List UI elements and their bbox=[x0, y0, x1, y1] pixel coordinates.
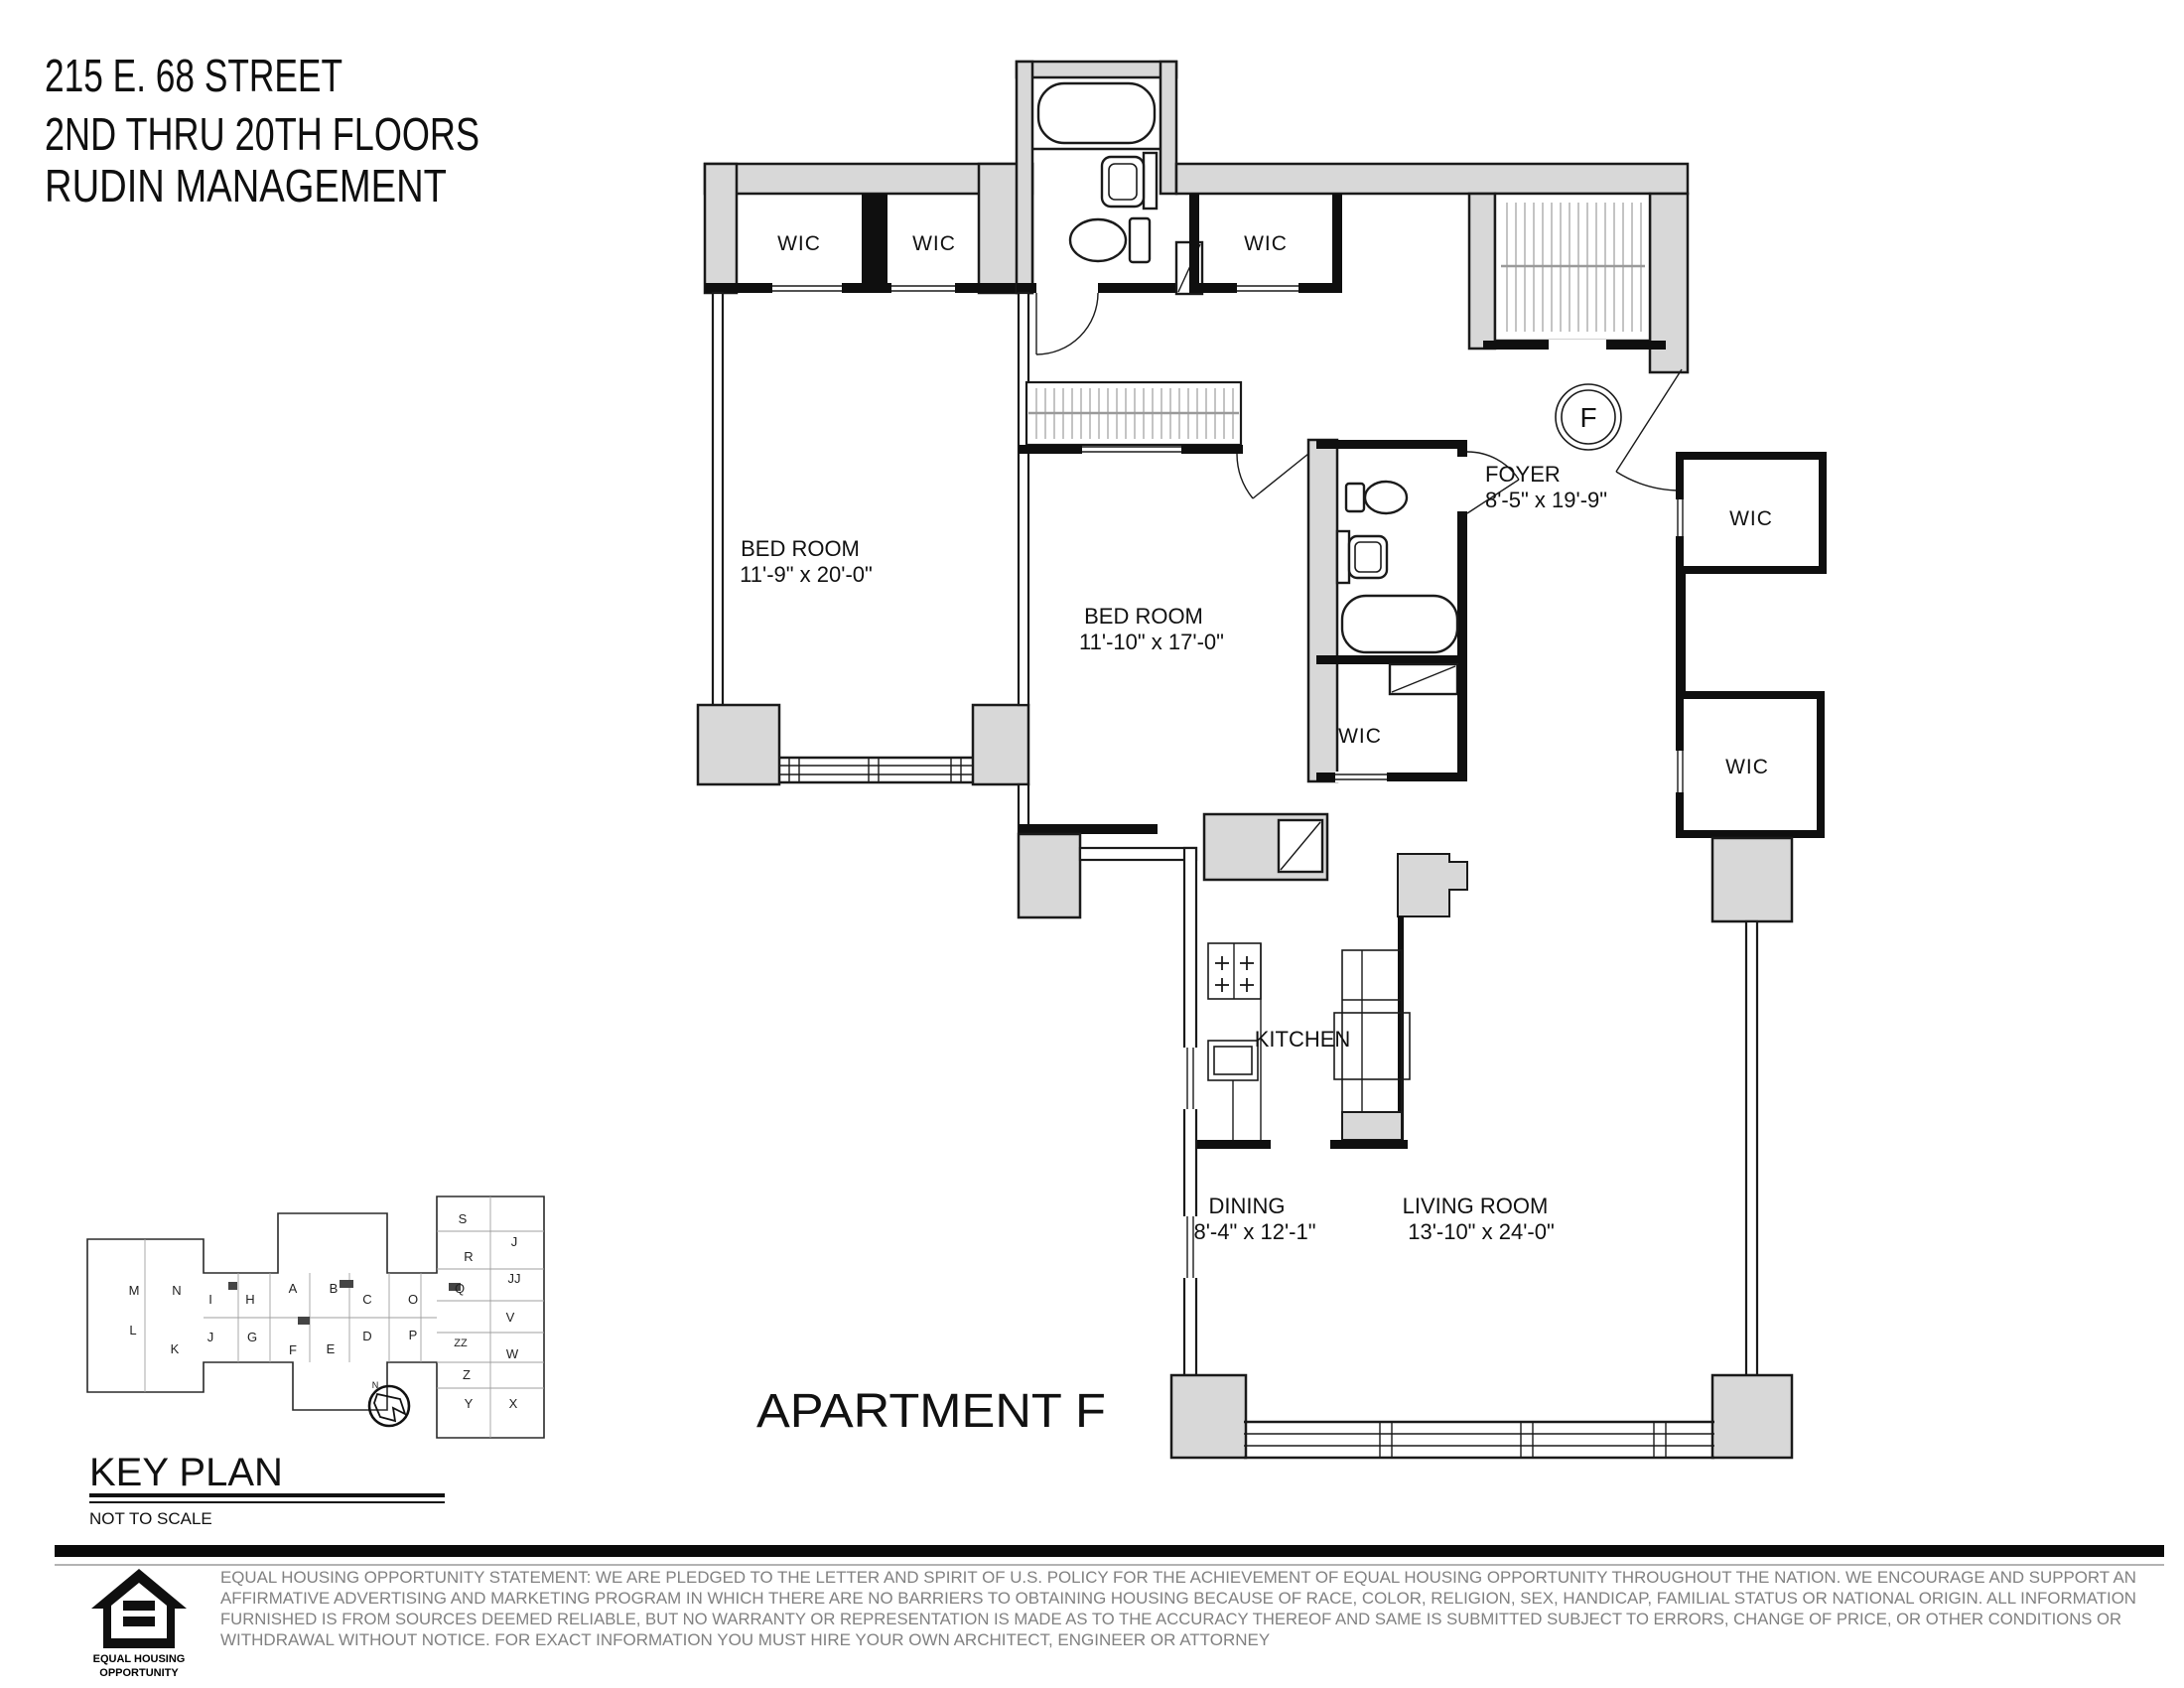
disclaimer-text: EQUAL HOUSING OPPORTUNITY STATEMENT: WE … bbox=[220, 1568, 2136, 1649]
keyplan-unit-A: A bbox=[289, 1281, 298, 1296]
wic4-wall-right bbox=[1457, 664, 1467, 781]
wicr1-wall-top bbox=[1676, 452, 1827, 460]
keyplan-unit-G: G bbox=[247, 1330, 257, 1344]
floorplan-canvas: 215 E. 68 STREET 2ND THRU 20TH FLOORS RU… bbox=[0, 0, 2184, 1688]
keyplan-unit-D: D bbox=[362, 1329, 371, 1343]
kitchen: KITCHEN bbox=[1196, 814, 1467, 1149]
wic-right2-label: WIC bbox=[1725, 756, 1769, 778]
disclaimer-line-2: AFFIRMATIVE ADVERTISING AND MARKETING PR… bbox=[220, 1589, 2136, 1608]
bath2-gray-left bbox=[1308, 440, 1337, 781]
floorplan-page: 215 E. 68 STREET 2ND THRU 20TH FLOORS RU… bbox=[0, 0, 2184, 1688]
eho-text-line1: EQUAL HOUSING bbox=[93, 1653, 186, 1665]
toilet2-bowl-icon bbox=[1365, 482, 1407, 513]
bath2-wall-bottom bbox=[1316, 655, 1467, 664]
kitchen-gray-step bbox=[1398, 854, 1467, 916]
disclaimer-line-4: WITHDRAWAL WITHOUT NOTICE. FOR EXACT INF… bbox=[220, 1630, 1270, 1649]
keyplan-unit-X: X bbox=[509, 1396, 518, 1411]
exterior-step-wall bbox=[1080, 848, 1196, 860]
floors-line: 2ND THRU 20TH FLOORS bbox=[45, 108, 479, 160]
living-name: LIVING ROOM bbox=[1403, 1194, 1549, 1218]
dining-name: DINING bbox=[1209, 1194, 1286, 1218]
wic-bath2-label: WIC bbox=[1338, 725, 1382, 748]
closet-gray-left bbox=[1469, 194, 1495, 349]
column-se bbox=[1712, 1375, 1792, 1458]
keyplan-core-3 bbox=[298, 1317, 310, 1325]
keyplan-unit-Y: Y bbox=[465, 1396, 474, 1411]
keyplan-unit-C: C bbox=[362, 1292, 371, 1307]
south-window-band bbox=[1244, 1422, 1714, 1458]
bed2-wall-top-a bbox=[1019, 445, 1082, 454]
bathtub2-icon bbox=[1342, 596, 1457, 652]
column-below-wicr2 bbox=[1712, 838, 1792, 921]
bedroom2-dims: 11'-10" x 17'-0" bbox=[1079, 630, 1224, 654]
keyplan-unit-Q: Q bbox=[455, 1281, 465, 1296]
keyplan-unit-M: M bbox=[129, 1283, 140, 1298]
bed1-column-left bbox=[698, 705, 779, 784]
wic-row-north: WIC WIC bbox=[705, 164, 1032, 294]
keyplan-unit-E: E bbox=[327, 1341, 336, 1356]
unit-marker-letter: F bbox=[1579, 402, 1596, 433]
keyplan-unit-J-top: J bbox=[511, 1234, 518, 1249]
keyplan-title: KEY PLAN bbox=[89, 1451, 283, 1494]
toilet-tank-icon bbox=[1130, 218, 1150, 262]
west-window-1 bbox=[1182, 1048, 1198, 1109]
bedroom-1: BED ROOM 11'-9" x 20'-0" bbox=[698, 293, 1028, 784]
sink2-backsplash-icon bbox=[1337, 531, 1349, 583]
wicr2-wall-right bbox=[1817, 691, 1825, 838]
wall-top-band-right bbox=[1176, 164, 1688, 194]
keyplan-unit-ZZ: ZZ bbox=[454, 1337, 468, 1349]
bedroom1-dims: 11'-9" x 20'-0" bbox=[740, 562, 873, 587]
footer: EQUAL HOUSING OPPORTUNITY EQUAL HOUSING … bbox=[55, 1545, 2164, 1679]
bath1-wall-left bbox=[1017, 62, 1032, 293]
keyplan-unit-JJ: JJ bbox=[508, 1271, 521, 1286]
sink-backsplash-icon bbox=[1144, 153, 1157, 209]
wic-b-door-opening bbox=[891, 282, 955, 294]
keyplan-core-1 bbox=[228, 1282, 237, 1290]
keyplan-unit-V: V bbox=[506, 1310, 515, 1325]
foyer-dims: 8'-5" x 19'-9" bbox=[1485, 488, 1607, 512]
right-wics: WIC WIC bbox=[1676, 452, 1827, 1375]
bed1-window bbox=[779, 758, 973, 782]
entry-door-leaf bbox=[1616, 369, 1682, 472]
bath2-wall-top bbox=[1316, 440, 1467, 449]
bathroom-1 bbox=[1017, 62, 1202, 354]
wicr2-wall-left-b bbox=[1676, 792, 1684, 838]
foyer: FOYER 8'-5" x 19'-9" bbox=[1485, 462, 1607, 512]
title-block: 215 E. 68 STREET 2ND THRU 20TH FLOORS RU… bbox=[45, 50, 479, 211]
wicmid-door-opening bbox=[1237, 282, 1298, 294]
keyplan-unit-K: K bbox=[171, 1341, 180, 1356]
equal-housing-logo: EQUAL HOUSING OPPORTUNITY bbox=[91, 1569, 187, 1679]
keyplan-unit-P: P bbox=[409, 1328, 418, 1342]
address-line: 215 E. 68 STREET bbox=[45, 50, 342, 101]
keyplan-unit-Z: Z bbox=[463, 1367, 471, 1382]
wicr1-wall-left-b bbox=[1676, 536, 1684, 574]
wic-right1-label: WIC bbox=[1729, 507, 1773, 530]
bed2-door-leaf bbox=[1253, 454, 1308, 498]
bed1-column-right bbox=[973, 705, 1028, 784]
eho-text-line2: OPPORTUNITY bbox=[99, 1667, 179, 1679]
wall-wic-divider bbox=[862, 194, 887, 285]
bath1-wall-top bbox=[1017, 62, 1176, 77]
bed2-wall-top-b bbox=[1181, 445, 1243, 454]
wic-middle-label: WIC bbox=[1244, 232, 1288, 255]
bed2-window-top bbox=[1082, 447, 1181, 452]
keyplan-unit-N: N bbox=[172, 1283, 181, 1298]
wicmid-wall-left bbox=[1189, 194, 1199, 293]
apartment-title: APARTMENT F bbox=[756, 1385, 1106, 1438]
keyplan-unit-F: F bbox=[289, 1342, 297, 1357]
keyplan-unit-R: R bbox=[464, 1249, 473, 1264]
wic-a-door-opening bbox=[772, 282, 842, 294]
keyplan-unit-I: I bbox=[208, 1292, 212, 1307]
footer-separator-bar bbox=[55, 1545, 2164, 1557]
living-dims: 13'-10" x 24'-0" bbox=[1408, 1219, 1555, 1244]
kitchen-sink-basin-icon bbox=[1214, 1047, 1252, 1074]
wicmid-wall-right bbox=[1332, 194, 1342, 293]
keyplan-outline bbox=[87, 1196, 544, 1438]
kitchen-label: KITCHEN bbox=[1255, 1027, 1351, 1052]
closet-opening bbox=[1549, 340, 1606, 351]
bathtub-icon bbox=[1038, 83, 1155, 143]
keyplan-unit-B: B bbox=[330, 1281, 339, 1296]
toilet2-tank-icon bbox=[1346, 484, 1364, 511]
keyplan-subtitle: NOT TO SCALE bbox=[89, 1509, 212, 1528]
keyplan-core-2 bbox=[340, 1280, 353, 1288]
management-line: RUDIN MANAGEMENT bbox=[45, 160, 447, 211]
north-label: N bbox=[372, 1380, 379, 1390]
keyplan-unit-O: O bbox=[408, 1292, 418, 1307]
counter-right-icon bbox=[1342, 950, 1402, 1112]
dining-dims: 8'-4" x 12'-1" bbox=[1193, 1219, 1315, 1244]
foyer-name: FOYER bbox=[1485, 462, 1561, 487]
wic-a-label: WIC bbox=[777, 232, 821, 255]
disclaimer-line-3: FURNISHED IS FROM SOURCES DEEMED RELIABL… bbox=[220, 1610, 2121, 1628]
wall-wic-bottom bbox=[705, 283, 1032, 293]
bed2-wall-bottom bbox=[1019, 824, 1158, 834]
disclaimer-line-1: EQUAL HOUSING OPPORTUNITY STATEMENT: WE … bbox=[220, 1568, 2136, 1587]
column-sw bbox=[1171, 1375, 1246, 1458]
bedroom2-name: BED ROOM bbox=[1084, 604, 1203, 629]
keyplan-unit-J: J bbox=[207, 1330, 214, 1344]
bath2-wall-right-b bbox=[1457, 511, 1467, 660]
kitchen-gray-base bbox=[1342, 1112, 1402, 1140]
keyplan-unit-H: H bbox=[245, 1292, 254, 1307]
keyplan-unit-S: S bbox=[459, 1211, 468, 1226]
bed1-wall-left bbox=[713, 293, 723, 709]
wicr1-wall-left-a bbox=[1676, 452, 1684, 499]
living-east-wall bbox=[1746, 921, 1757, 1375]
bath1-wall-right bbox=[1160, 62, 1176, 194]
kitchen-wall-bottom-right bbox=[1330, 1140, 1408, 1149]
wic-b-label: WIC bbox=[912, 232, 956, 255]
bath2-wall-right-a bbox=[1457, 440, 1467, 457]
entry-door-arc bbox=[1616, 472, 1682, 491]
wicr2-wall-left-a bbox=[1676, 691, 1684, 751]
toilet-bowl-icon bbox=[1070, 219, 1126, 261]
wicr2-wall-top bbox=[1676, 691, 1825, 699]
keyplan-unit-L: L bbox=[129, 1323, 136, 1337]
key-plan: M N I H A B C O Q S R J JJ V L K J G F E… bbox=[87, 1196, 544, 1528]
wicr1-wall-bottom bbox=[1676, 566, 1827, 574]
corridor-wall-right bbox=[1676, 574, 1686, 691]
bedroom1-name: BED ROOM bbox=[741, 536, 860, 561]
kitchen-wall-bottom-left bbox=[1196, 1140, 1271, 1149]
wall-left-jamb bbox=[705, 164, 737, 293]
bed2-door-arc bbox=[1237, 454, 1253, 498]
bath1-door-opening bbox=[1036, 282, 1098, 294]
dining-living: DINING 8'-4" x 12'-1" LIVING ROOM 13'-10… bbox=[1171, 848, 1792, 1458]
entry-area: F bbox=[1469, 194, 1688, 491]
west-wall bbox=[1184, 848, 1196, 1375]
wicr1-wall-right bbox=[1819, 452, 1827, 574]
keyplan-unit-W: W bbox=[506, 1346, 519, 1361]
bath1-door-arc bbox=[1036, 293, 1098, 354]
wic4-door-opening bbox=[1335, 772, 1387, 782]
bed-divider-wall-upper bbox=[1019, 293, 1028, 705]
bed2-column bbox=[1019, 834, 1080, 917]
